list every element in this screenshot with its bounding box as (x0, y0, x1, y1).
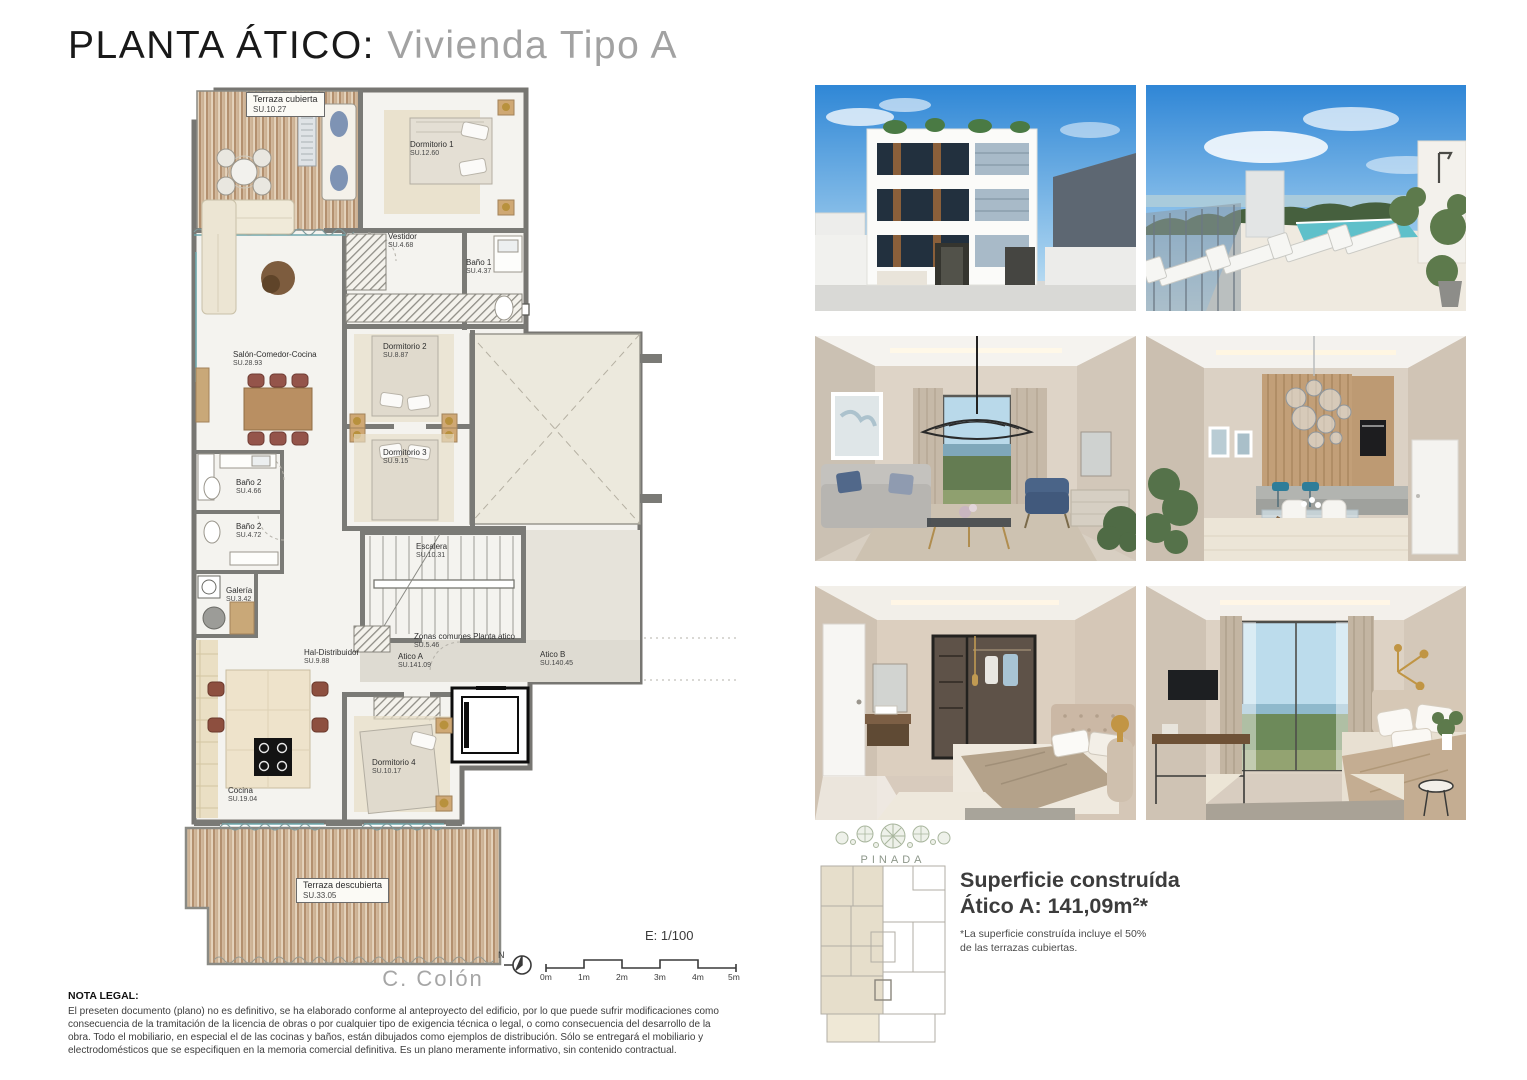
page-title: PLANTA ÁTICO: Vivienda Tipo A (68, 24, 678, 68)
room-label-vestidor: VestidorSU.4.68 (388, 232, 417, 250)
room-label-dormitorio-1: Dormitorio 1SU.12.60 (410, 140, 454, 158)
room-label-bano-2b: Baño 2SU.4.72 (236, 522, 261, 540)
brand-logo-icon (818, 820, 968, 854)
scale-tick-3: 3m (654, 972, 666, 982)
room-label-salon-comedor-cocina: Salón-Comedor-CocinaSU.28.93 (233, 350, 317, 368)
room-label-atico-a: Atico ASU.141.09 (398, 652, 431, 670)
summary-title: Superficie construída Ático A: 141,09m²* (960, 868, 1180, 920)
brochure-page: PLANTA ÁTICO: Vivienda Tipo A (0, 0, 1527, 1080)
room-label-bano-2a: Baño 2SU.4.66 (236, 478, 261, 496)
scale-tick-2: 2m (616, 972, 628, 982)
scale-label: E: 1/100 (645, 928, 693, 943)
room-label-bano-1: Baño 1SU.4.37 (466, 258, 491, 276)
room-label-terraza-descubierta: Terraza descubiertaSU.33.05 (296, 878, 389, 903)
scale-tick-5: 5m (728, 972, 740, 982)
photo-bedroom-sea-view (1146, 586, 1466, 820)
legal-heading: NOTA LEGAL: (68, 990, 728, 1004)
room-label-terraza-cubierta: Terraza cubiertaSU.10.27 (246, 92, 325, 117)
photo-rooftop-pool-terrace (1146, 85, 1466, 311)
north-compass-icon (504, 956, 531, 974)
room-label-cocina: CocinaSU.19.04 (228, 786, 257, 804)
scale-tick-1: 1m (578, 972, 590, 982)
room-label-dormitorio-3: Dormitorio 3SU.9.15 (383, 448, 427, 466)
room-label-dormitorio-4: Dormitorio 4SU.10.17 (372, 758, 416, 776)
room-label-zonas-comunes: Zonas comunes Planta aticoSU.5.46 (414, 632, 515, 650)
room-label-galeria: GaleríaSU.3.42 (226, 586, 252, 604)
summary-title-line1: Superficie construída (960, 868, 1180, 894)
page-title-main: PLANTA ÁTICO: (68, 24, 375, 67)
floor-plan-region: Terraza cubiertaSU.10.27 Dormitorio 1SU.… (178, 82, 748, 992)
room-label-dormitorio-2: Dormitorio 2SU.8.87 (383, 342, 427, 360)
scale-tick-0: 0m (540, 972, 552, 982)
photo-dining-kitchen (1146, 336, 1466, 561)
scale-tick-4: 4m (692, 972, 704, 982)
key-plan-thumbnail (815, 862, 951, 1048)
room-label-atico-b: Atico BSU.140.45 (540, 650, 573, 668)
legal-note: NOTA LEGAL: El preseten documento (plano… (68, 990, 728, 1058)
floor-plan-drawing (178, 82, 748, 992)
legal-body: El preseten documento (plano) no es defi… (68, 1005, 728, 1058)
scale-bar: N 0m 1m 2m 3m 4m 5m (500, 948, 740, 988)
photo-building-facade (815, 85, 1136, 311)
room-label-hal-distribuidor: Hal-DistribuidorSU.9.88 (304, 648, 359, 666)
summary-footnote: *La superficie construída incluye el 50%… (960, 928, 1160, 955)
photo-bedroom-walkin-closet (815, 586, 1136, 820)
north-label: N (498, 950, 505, 960)
photo-living-room (815, 336, 1136, 561)
page-title-sub: Vivienda Tipo A (375, 24, 678, 67)
summary-title-line2: Ático A: 141,09m²* (960, 894, 1180, 920)
room-label-escalera: EscaleraSU.10.31 (416, 542, 447, 560)
